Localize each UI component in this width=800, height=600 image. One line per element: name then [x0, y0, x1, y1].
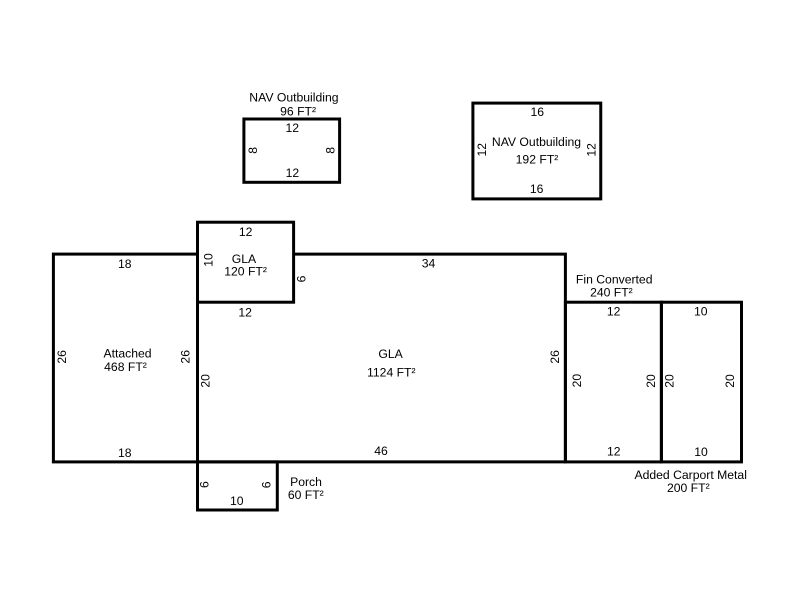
svg-text:46: 46 [374, 444, 388, 458]
svg-text:26: 26 [179, 350, 193, 364]
svg-text:12: 12 [585, 143, 599, 157]
svg-text:16: 16 [531, 105, 545, 119]
svg-text:16: 16 [530, 182, 544, 196]
svg-text:6: 6 [295, 275, 309, 282]
svg-text:6: 6 [259, 481, 273, 488]
svg-text:12: 12 [607, 444, 621, 458]
svg-text:NAV Outbuilding: NAV Outbuilding [249, 91, 338, 105]
svg-text:20: 20 [662, 374, 676, 388]
svg-text:20: 20 [723, 374, 737, 388]
svg-text:10: 10 [694, 305, 708, 319]
svg-text:20: 20 [644, 374, 658, 388]
svg-text:1124 FT²: 1124 FT² [367, 365, 416, 379]
svg-text:12: 12 [238, 306, 252, 320]
svg-text:12: 12 [286, 121, 300, 135]
svg-text:NAV Outbuilding: NAV Outbuilding [492, 135, 581, 149]
svg-text:12: 12 [239, 225, 253, 239]
svg-text:34: 34 [422, 257, 436, 271]
svg-text:96 FT²: 96 FT² [280, 105, 316, 119]
svg-text:240 FT²: 240 FT² [590, 285, 633, 299]
svg-text:26: 26 [55, 350, 69, 364]
svg-text:200 FT²: 200 FT² [667, 481, 710, 495]
svg-text:Attached: Attached [103, 347, 151, 361]
svg-text:10: 10 [230, 494, 244, 508]
svg-text:468 FT²: 468 FT² [104, 360, 147, 374]
svg-text:26: 26 [548, 350, 562, 364]
svg-text:192 FT²: 192 FT² [516, 152, 559, 166]
svg-text:8: 8 [324, 147, 338, 154]
svg-text:20: 20 [570, 374, 584, 388]
svg-text:20: 20 [198, 374, 212, 388]
svg-text:120 FT²: 120 FT² [224, 264, 267, 278]
svg-text:12: 12 [475, 143, 489, 157]
svg-text:6: 6 [198, 481, 212, 488]
svg-text:Porch: Porch [290, 475, 322, 489]
svg-text:12: 12 [286, 166, 300, 180]
svg-text:12: 12 [607, 304, 621, 318]
svg-text:18: 18 [118, 446, 132, 460]
svg-text:18: 18 [118, 257, 132, 271]
svg-text:60 FT²: 60 FT² [288, 488, 324, 502]
svg-text:GLA: GLA [378, 347, 403, 361]
svg-text:10: 10 [694, 445, 708, 459]
svg-text:10: 10 [202, 253, 216, 267]
svg-text:Added Carport Metal: Added Carport Metal [634, 468, 746, 482]
svg-text:8: 8 [246, 147, 260, 154]
